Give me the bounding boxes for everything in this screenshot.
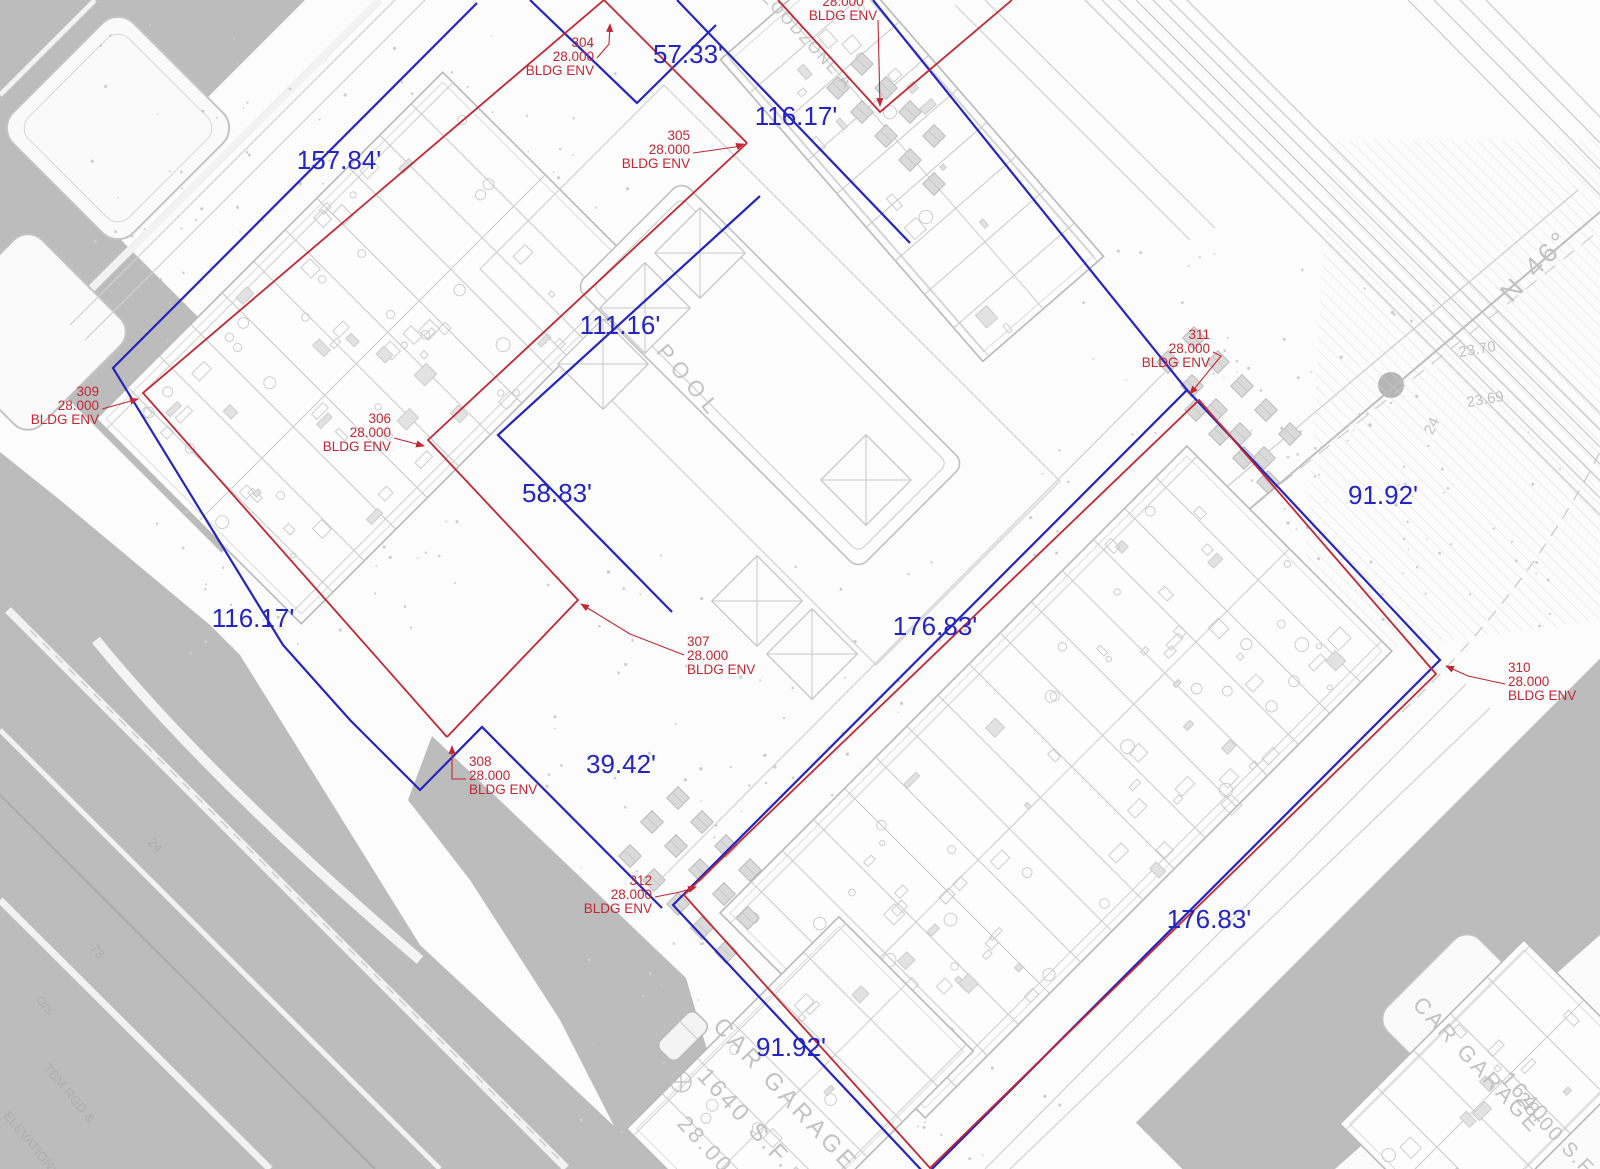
- dimension-text: 116.17': [212, 603, 295, 633]
- envelope-setback: 28.000: [611, 887, 652, 902]
- envelope-number: 309: [76, 384, 99, 399]
- envelope-setback: 28.000: [687, 648, 728, 663]
- envelope-kind: BLDG ENV: [1508, 688, 1576, 703]
- envelope-setback: 28.000: [58, 398, 99, 413]
- dimension-text: 111.16': [580, 310, 661, 340]
- envelope-label-311: 311 28.000 BLDG ENV: [1142, 327, 1210, 370]
- envelope-label-304: 304 28.000 BLDG ENV: [526, 35, 595, 78]
- dimension-text: 39.42': [586, 749, 656, 779]
- envelope-label-307: 307 28.000 BLDG ENV: [687, 634, 755, 677]
- envelope-number: 312: [629, 873, 652, 888]
- dimension-text: 116.17': [755, 101, 838, 131]
- dimension-text: 58.83': [522, 478, 592, 508]
- site-plan-sheet: POOL FLOODZONE A N 46° 23.70 23.69 24 CA…: [0, 0, 1600, 1169]
- envelope-number: 305: [667, 128, 690, 143]
- envelope-kind: BLDG ENV: [622, 156, 690, 171]
- envelope-label-305: 305 28.000 BLDG ENV: [622, 128, 690, 171]
- dimension-text: 57.33': [653, 39, 723, 69]
- envelope-label-308: 308 28.000 BLDG ENV: [469, 754, 537, 797]
- envelope-number: 308: [469, 754, 492, 769]
- envelope-kind: BLDG ENV: [323, 439, 391, 454]
- utility-symbol: [671, 1072, 691, 1092]
- envelope-number: 304: [571, 35, 594, 50]
- envelope-kind: BLDG ENV: [687, 662, 755, 677]
- envelope-setback: 28.000: [1508, 674, 1549, 689]
- dimension-text: 91.92': [756, 1032, 826, 1062]
- envelope-kind: BLDG ENV: [1142, 355, 1210, 370]
- envelope-label-310: 310 28.000 BLDG ENV: [1508, 660, 1576, 703]
- envelope-kind: BLDG ENV: [31, 412, 99, 427]
- envelope-setback: 28.000: [649, 142, 690, 157]
- site-plan-svg: POOL FLOODZONE A N 46° 23.70 23.69 24 CA…: [0, 0, 1600, 1169]
- envelope-setback: 28.000: [1169, 341, 1210, 356]
- envelope-kind: BLDG ENV: [809, 8, 877, 23]
- envelope-setback: 28.000: [469, 768, 510, 783]
- envelope-number: 306: [368, 411, 391, 426]
- envelope-setback: 28.000: [553, 49, 594, 64]
- dimension-text: 176.83': [1167, 904, 1252, 934]
- envelope-number: 311: [1188, 327, 1210, 342]
- envelope-kind: BLDG ENV: [469, 782, 537, 797]
- dimension-text: 91.92': [1348, 480, 1418, 510]
- envelope-number: 310: [1508, 660, 1531, 675]
- dimension-text: 176.83': [893, 611, 978, 641]
- envelope-number: 307: [687, 634, 710, 649]
- envelope-kind: BLDG ENV: [584, 901, 652, 916]
- dimension-text: 157.84': [297, 145, 382, 175]
- envelope-setback: 28.000: [350, 425, 391, 440]
- envelope-kind: BLDG ENV: [526, 63, 594, 78]
